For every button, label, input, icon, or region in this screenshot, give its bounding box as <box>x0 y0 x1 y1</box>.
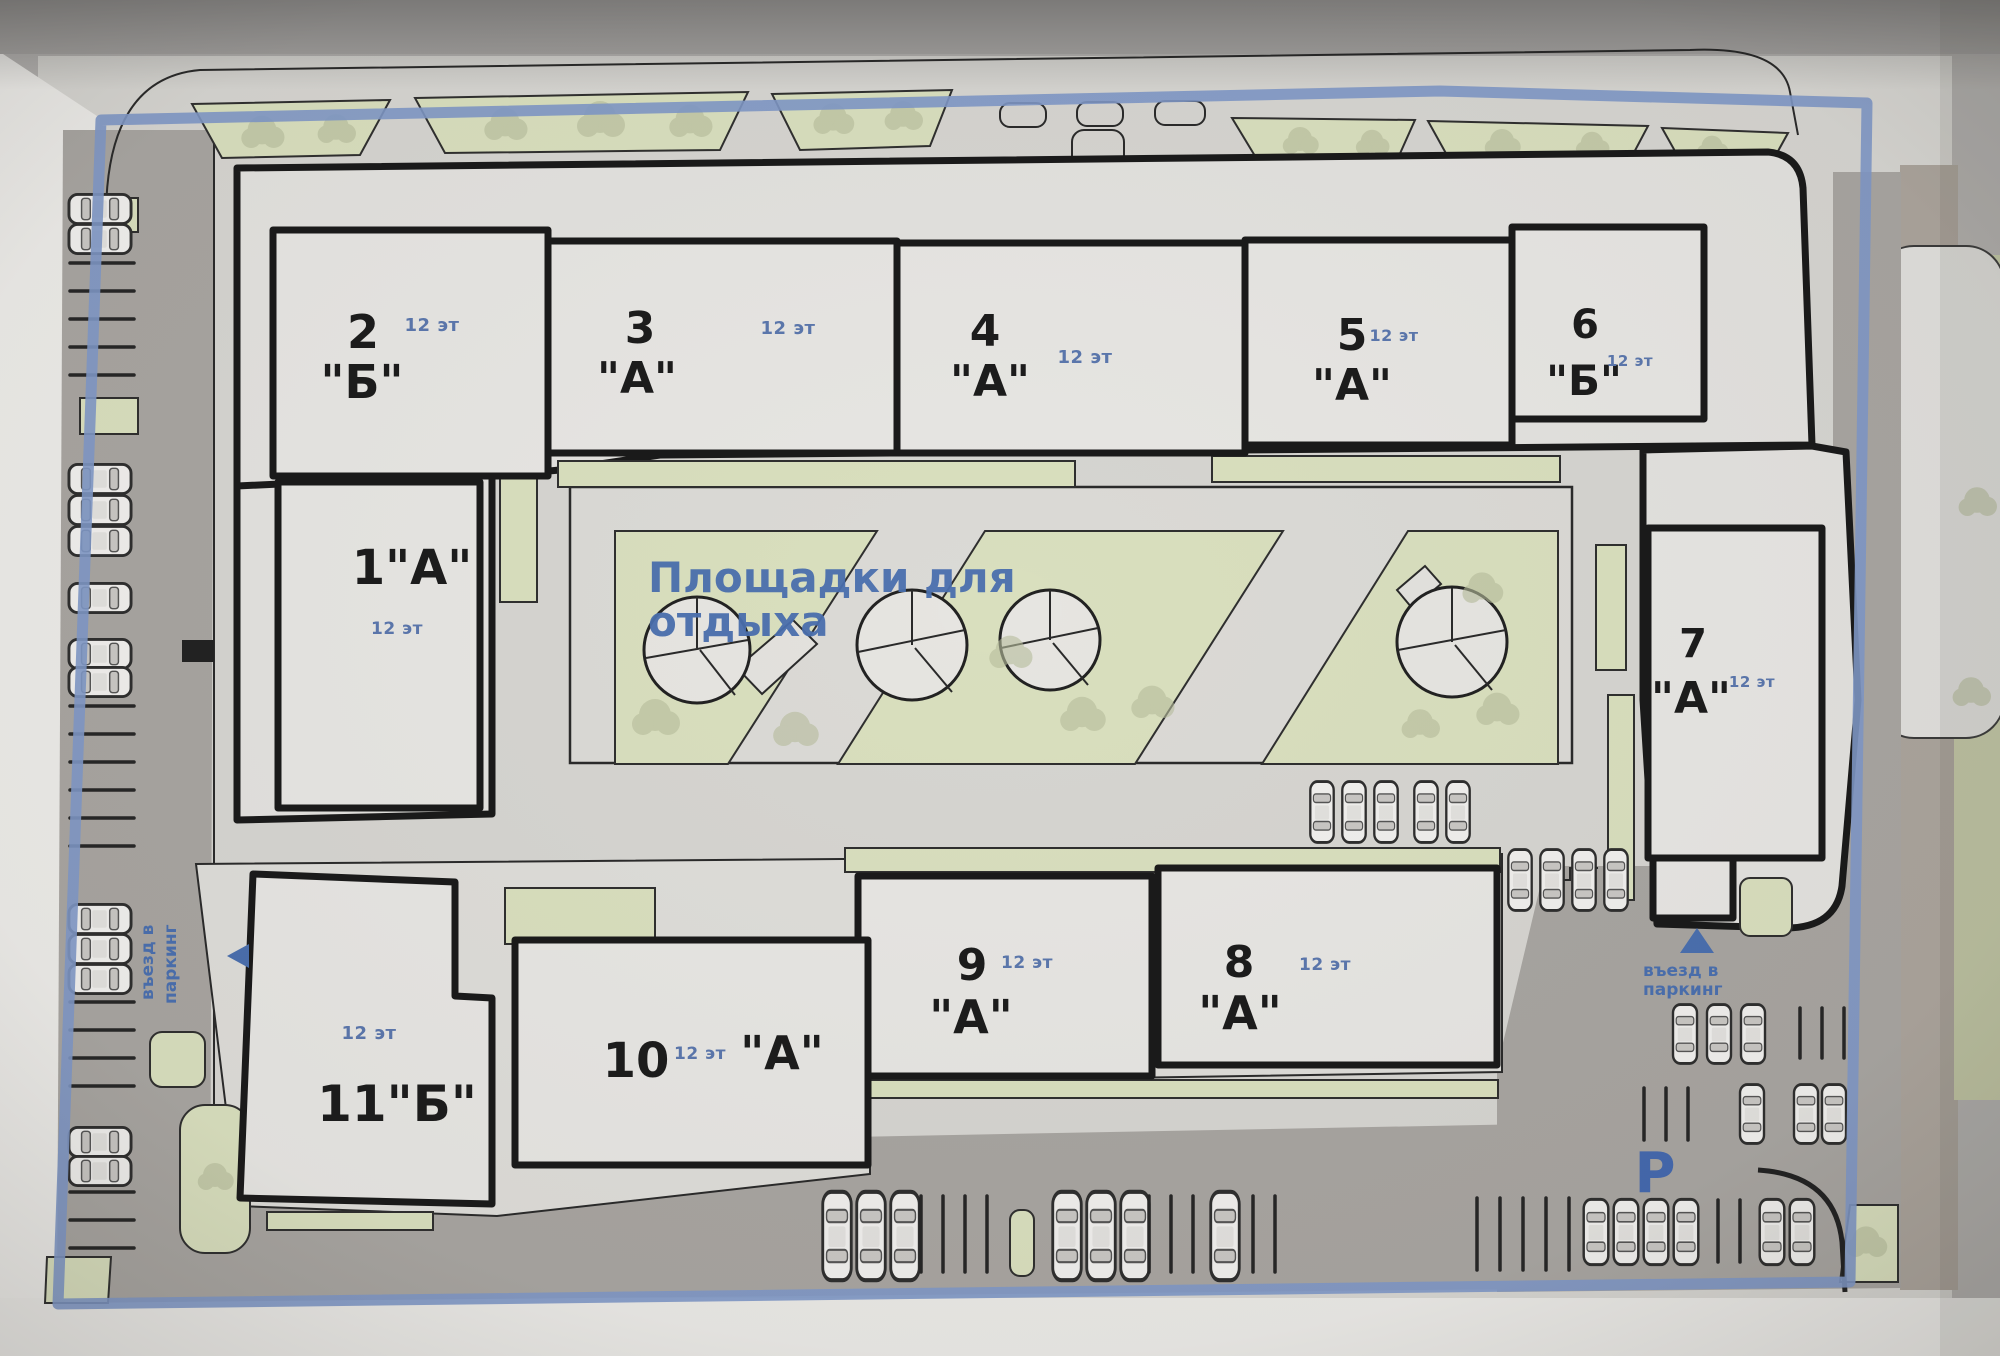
building-8-letter: "А" <box>1198 986 1282 1040</box>
building-2-number: 2 <box>347 305 379 359</box>
parking-entrance-right-label-line-2: паркинг <box>1643 980 1723 1000</box>
car-icon <box>69 904 131 933</box>
green-patch <box>1596 545 1626 670</box>
courtyard-label-line-1: Площадки для <box>648 553 1016 602</box>
car-icon <box>1446 782 1469 843</box>
building-1-floors: 12 эт <box>371 619 423 639</box>
green-patch <box>267 1212 433 1230</box>
car-icon <box>1741 1005 1765 1064</box>
car-icon <box>1760 1199 1785 1264</box>
paper-bottom-margin <box>0 1298 2000 1356</box>
building-5-letter: "А" <box>1312 360 1392 411</box>
car-icon <box>1644 1199 1669 1264</box>
building-2-outline <box>273 230 548 476</box>
building-8: 8 12 эт "А" <box>1158 868 1497 1065</box>
building-3-outline <box>548 241 897 453</box>
building-7-number: 7 <box>1679 621 1707 667</box>
building-4-floors: 12 эт <box>1058 347 1113 368</box>
building-6-number: 6 <box>1571 302 1599 348</box>
car-icon <box>69 495 131 524</box>
parking-symbol: Р <box>1634 1141 1675 1206</box>
car-icon <box>69 526 131 555</box>
car-icon <box>1707 1005 1731 1064</box>
building-11-number: 11"Б" <box>317 1075 477 1133</box>
building-3: 3 12 эт "А" <box>548 241 897 453</box>
building-9-floors: 12 эт <box>1001 953 1053 973</box>
car-icon <box>1673 1005 1697 1064</box>
car-icon <box>857 1192 886 1280</box>
building-9-number: 9 <box>957 940 988 991</box>
car-icon <box>1740 1085 1764 1144</box>
building-7-floors: 12 эт <box>1729 673 1775 691</box>
green-patch <box>150 1032 205 1087</box>
site-plan-photo: Площадки для отдыха 2 12 эт "Б" <box>0 0 2000 1356</box>
green-patch <box>1740 878 1792 936</box>
car-icon <box>1604 850 1627 911</box>
footprint-left-stub <box>182 640 214 662</box>
building-11: 11"Б" 12 эт <box>240 874 492 1204</box>
building-10-floors: 12 эт <box>674 1044 726 1064</box>
building-2-letter: "Б" <box>321 355 404 409</box>
building-11-floors: 12 эт <box>342 1023 397 1044</box>
building-2-floors: 12 эт <box>405 315 460 336</box>
building-7: 7 "А" 12 эт <box>1648 528 1822 918</box>
building-10-number: 10 <box>603 1033 670 1089</box>
parking-entrance-left-label-line-2: паркинг <box>161 924 181 1004</box>
building-7-annex-outline <box>1653 858 1733 918</box>
courtyard-green-strip <box>1212 456 1560 482</box>
building-5-floors: 12 эт <box>1369 326 1418 345</box>
courtyard: Площадки для отдыха <box>500 456 1572 764</box>
building-10: 10 12 эт "А" <box>515 940 868 1165</box>
building-7-letter: "А" <box>1651 673 1731 724</box>
green-patch <box>1010 1210 1034 1276</box>
building-3-letter: "А" <box>597 353 677 404</box>
building-9-letter: "А" <box>929 990 1013 1044</box>
car-icon <box>1053 1192 1082 1280</box>
car-icon <box>69 464 131 493</box>
car-icon <box>1614 1199 1639 1264</box>
car-icon <box>823 1192 852 1280</box>
car-icon <box>1584 1199 1609 1264</box>
building-5: 5 12 эт "А" <box>1245 240 1512 445</box>
car-icon <box>69 964 131 993</box>
building-9: 9 12 эт "А" <box>858 876 1152 1076</box>
building-8-floors: 12 эт <box>1299 955 1351 975</box>
car-icon <box>1822 1085 1846 1144</box>
car-icon <box>1790 1199 1815 1264</box>
car-icon <box>1572 850 1595 911</box>
car-icon <box>1674 1199 1699 1264</box>
car-icon <box>1211 1192 1240 1280</box>
car-icon <box>1121 1192 1150 1280</box>
car-icon <box>1310 782 1333 843</box>
planting-bed <box>1232 118 1415 158</box>
car-icon <box>1374 782 1397 843</box>
car-icon <box>891 1192 920 1280</box>
building-8-number: 8 <box>1224 937 1255 988</box>
building-5-number: 5 <box>1337 310 1368 361</box>
car-icon <box>1342 782 1365 843</box>
parking-entrance-left-label-line-1: въезд в <box>138 924 158 1000</box>
green-strip <box>505 888 655 944</box>
building-2: 2 12 эт "Б" <box>273 230 548 476</box>
courtyard-green-strip <box>558 461 1075 487</box>
courtyard-label-line-2: отдыха <box>648 597 829 646</box>
building-3-number: 3 <box>625 303 656 354</box>
site-plan-svg: Площадки для отдыха 2 12 эт "Б" <box>0 0 2000 1356</box>
car-icon <box>1540 850 1563 911</box>
car-icon <box>1508 850 1531 911</box>
photo-top-strip <box>0 0 2000 54</box>
car-icon <box>69 1127 131 1156</box>
building-4-number: 4 <box>970 306 1001 357</box>
car-icon <box>1794 1085 1818 1144</box>
building-1-number: 1"А" <box>352 540 473 596</box>
green-strip <box>848 1080 1498 1098</box>
building-6-floors: 12 эт <box>1607 352 1653 370</box>
planting-bed <box>192 100 390 158</box>
car-icon <box>1414 782 1437 843</box>
building-1: 1"А" 12 эт <box>278 482 480 808</box>
building-4-letter: "А" <box>950 356 1030 407</box>
building-4: 4 12 эт "А" <box>897 243 1245 453</box>
building-3-floors: 12 эт <box>761 318 816 339</box>
building-1-outline <box>278 482 480 808</box>
building-9-outline <box>858 876 1152 1076</box>
building-10-letter: "А" <box>740 1026 824 1080</box>
parking-entrance-right-label-line-1: въезд в <box>1643 961 1719 981</box>
car-icon <box>69 934 131 963</box>
car-icon <box>69 1156 131 1185</box>
building-6: 6 "Б" 12 эт <box>1512 227 1704 419</box>
car-icon <box>1087 1192 1116 1280</box>
